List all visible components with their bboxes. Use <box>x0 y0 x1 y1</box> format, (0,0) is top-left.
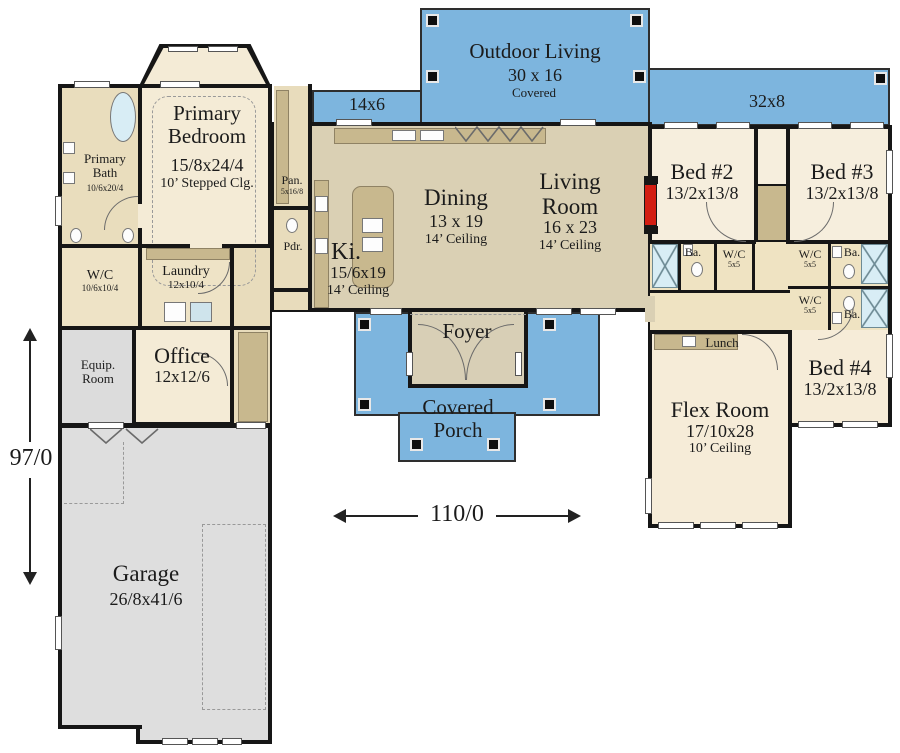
window <box>560 119 596 126</box>
wall-bed2-bath-bottom <box>650 290 790 293</box>
dim-line-left <box>346 515 418 517</box>
kitchen-dims: 15/6x19 <box>318 264 398 282</box>
covered-porch-label: Covered Porch <box>406 396 510 441</box>
window <box>798 122 832 129</box>
washer <box>164 302 186 322</box>
porch-column <box>630 14 643 27</box>
wall-wc-laundry <box>138 244 142 330</box>
powder-label: Pdr. <box>276 240 310 253</box>
wall-pantry-pdr <box>272 206 312 210</box>
pantry-label: Pan. <box>274 174 310 187</box>
walk-in-closet-label: W/C <box>70 268 130 283</box>
foyer-door-jamb <box>515 352 522 376</box>
porch-column <box>426 14 439 27</box>
outdoor-living-note: Covered <box>484 86 584 100</box>
flex-room-dims: 17/10x28 <box>664 422 776 441</box>
wall-row2-bottom <box>58 326 272 330</box>
entry-closet <box>756 184 788 242</box>
outdoor-living-label: Outdoor Living <box>430 40 640 63</box>
window <box>716 122 750 129</box>
laundry-dims: 12x10/4 <box>154 280 218 292</box>
window <box>700 522 736 529</box>
garage-door-swing <box>90 428 160 444</box>
dim-arrow-left <box>333 509 346 523</box>
window <box>580 308 616 315</box>
dim-line-down <box>29 478 31 574</box>
dining-ceiling: 14’ Ceiling <box>410 232 502 247</box>
wall-equip-office <box>132 326 136 426</box>
window <box>74 81 110 88</box>
primary-bath-dims: 10/6x20/4 <box>72 184 138 194</box>
laundry-label: Laundry <box>148 264 224 279</box>
primary-bath-label: Primary Bath <box>72 152 138 180</box>
wc-dims: 5x5 <box>719 261 749 270</box>
porch-column <box>358 398 371 411</box>
window <box>536 308 572 315</box>
kitchen-ceiling: 14’ Ceiling <box>314 283 402 298</box>
window <box>842 421 878 428</box>
door-opening <box>88 422 124 429</box>
wc-label: W/C <box>792 294 828 307</box>
bay-window-glass <box>208 46 238 52</box>
kitchen-sink <box>392 130 416 141</box>
garage-rear-door <box>222 738 242 745</box>
office-dims: 12x12/6 <box>140 368 224 386</box>
dim-arrow-right <box>568 509 581 523</box>
bay-window-glass <box>168 46 198 52</box>
bed4-dims: 13/2x13/8 <box>784 380 896 399</box>
porch-column <box>874 72 887 85</box>
walk-in-closet-dims: 10/6x10/4 <box>68 284 132 294</box>
porch-column <box>426 70 439 83</box>
window <box>55 616 62 650</box>
garage-dashed-area <box>202 524 266 710</box>
horizontal-dimension-label: 110/0 <box>420 502 494 528</box>
bath-label: Ba. <box>838 308 866 321</box>
window <box>850 122 884 129</box>
toilet <box>286 218 298 233</box>
accordion-door <box>455 126 547 142</box>
kitchen-appliance <box>315 196 328 212</box>
porch-column <box>358 318 371 331</box>
primary-bedroom-label: Primary Bedroom <box>146 102 268 147</box>
bed2-label: Bed #2 <box>652 160 752 184</box>
window <box>658 522 694 529</box>
pantry-dims: 5x16/8 <box>272 188 312 197</box>
primary-bedroom-dims: 15/8x24/4 <box>146 156 268 175</box>
foyer-label: Foyer <box>424 320 510 343</box>
window <box>798 421 834 428</box>
garage-notch-wall <box>136 725 140 744</box>
flex-room-label: Flex Room <box>655 398 785 422</box>
wc-label: W/C <box>792 248 828 261</box>
dim-line-right <box>496 515 568 517</box>
bath-label: Ba. <box>838 246 866 259</box>
hall-cabinet <box>238 332 268 422</box>
window <box>664 122 698 129</box>
porch-column <box>543 398 556 411</box>
equip-room-label: Equip. Room <box>72 358 124 386</box>
wall-pdr-bottom <box>272 288 312 292</box>
dryer <box>190 302 212 322</box>
garage-dims: 26/8x41/6 <box>94 590 198 609</box>
living-room-label: Living Room <box>520 170 620 220</box>
wc-dims: 5x5 <box>795 307 825 316</box>
wall-office-right <box>230 326 234 426</box>
garage-notch-wall <box>58 725 142 729</box>
window <box>645 478 652 514</box>
window <box>55 196 62 226</box>
lunch-label: Lunch <box>692 336 752 350</box>
garage-rear-door <box>162 738 188 745</box>
porch-column <box>543 318 556 331</box>
bed2-dims: 13/2x13/8 <box>646 184 758 203</box>
toilet <box>843 264 855 279</box>
window <box>160 81 200 88</box>
wall-laundry-right <box>230 244 234 330</box>
garage-dashed-area <box>64 442 124 504</box>
porch-column <box>633 70 646 83</box>
bed4-label: Bed #4 <box>790 356 890 380</box>
vertical-dimension-label: 97/0 <box>4 446 58 472</box>
dim-arrow-down <box>23 572 37 585</box>
dim-line-up <box>29 338 31 442</box>
bath-door-gap <box>138 204 142 228</box>
bed3-dims: 13/2x13/8 <box>786 184 898 203</box>
floor-plan: Outdoor Living 30 x 16 Covered 32x8 14x6… <box>0 0 900 753</box>
toilet <box>122 228 134 243</box>
cooktop <box>362 218 383 233</box>
kitchen-sink <box>420 130 444 141</box>
window <box>742 522 778 529</box>
hall-opening <box>645 296 655 322</box>
window <box>370 308 402 315</box>
wc-dims: 5x5 <box>795 261 825 270</box>
wall-bed2-bath-3 <box>752 242 755 292</box>
bath-label: Ba. <box>679 246 707 259</box>
fireplace-cap <box>644 226 658 234</box>
living-room-ceiling: 14’ Ceiling <box>520 238 620 253</box>
foyer-door-jamb <box>406 352 413 376</box>
office-label: Office <box>140 344 224 368</box>
bed3-label: Bed #3 <box>792 160 892 184</box>
foyer-ceiling-line <box>410 314 526 315</box>
toilet <box>70 228 82 243</box>
wc-label: W/C <box>716 248 752 261</box>
laundry-counter <box>146 248 230 260</box>
bathtub <box>110 92 136 142</box>
flex-room-ceiling: 10’ Ceiling <box>668 441 772 456</box>
living-room-dims: 16 x 23 <box>524 218 616 237</box>
wall-pantry-right <box>308 84 312 312</box>
primary-bedroom-ceiling: 10’ Stepped Clg. <box>140 176 274 191</box>
porch-32x8-dims: 32x8 <box>722 92 812 111</box>
shower <box>652 244 678 288</box>
door-opening <box>236 422 266 429</box>
toilet <box>691 262 703 277</box>
dim-arrow-up <box>23 328 37 341</box>
garage-rear-door <box>192 738 218 745</box>
window <box>336 119 372 126</box>
outdoor-living-dims: 30 x 16 <box>480 66 590 85</box>
dining-label: Dining <box>408 186 504 211</box>
dining-dims: 13 x 19 <box>412 212 500 231</box>
garage-label: Garage <box>98 562 194 587</box>
porch-14x6-dims: 14x6 <box>332 95 402 114</box>
